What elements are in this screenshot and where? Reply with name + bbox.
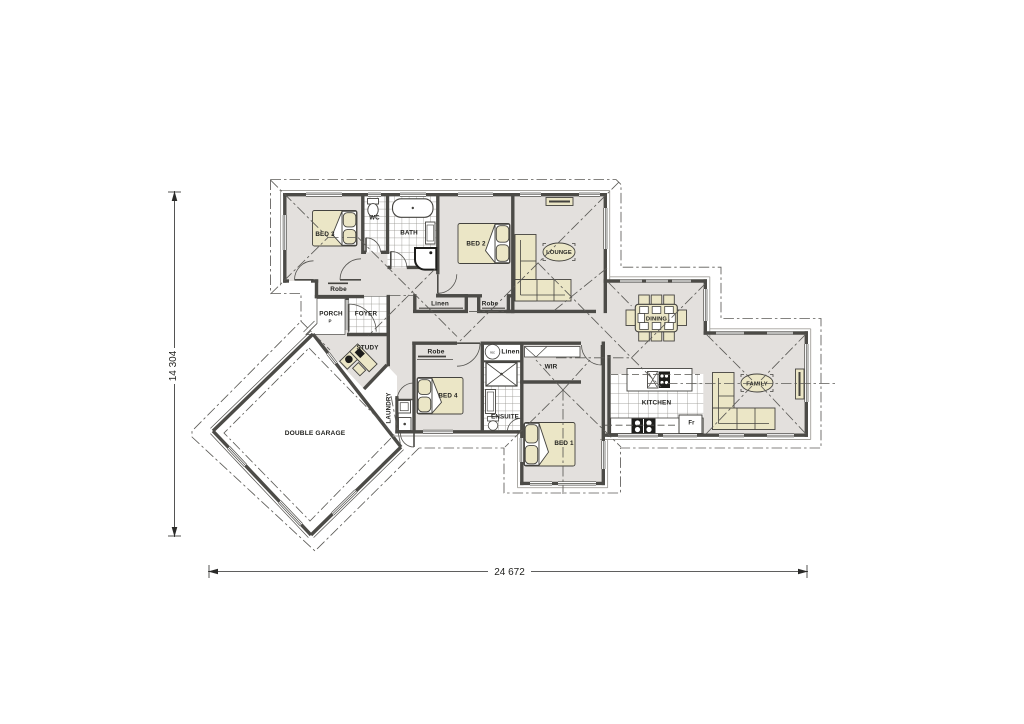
svg-text:FAMILY: FAMILY — [746, 381, 768, 387]
svg-text:BATH: BATH — [400, 230, 418, 237]
svg-text:Robe: Robe — [482, 301, 499, 308]
svg-text:ENSUITE: ENSUITE — [491, 414, 519, 421]
svg-text:KITCHEN: KITCHEN — [642, 400, 672, 407]
svg-text:PORCH: PORCH — [319, 311, 343, 318]
svg-text:WIR: WIR — [545, 364, 558, 371]
svg-text:BED 1: BED 1 — [554, 440, 574, 447]
svg-text:Robe: Robe — [427, 349, 444, 356]
svg-text:rec: rec — [490, 350, 495, 354]
svg-text:Robe: Robe — [330, 286, 347, 293]
svg-text:Fr: Fr — [688, 421, 695, 427]
svg-text:FOYER: FOYER — [355, 311, 378, 318]
svg-text:BED 2: BED 2 — [466, 241, 486, 248]
svg-text:Linen: Linen — [431, 301, 449, 308]
svg-text:P: P — [328, 319, 331, 324]
svg-text:14 304: 14 304 — [168, 350, 179, 381]
svg-text:24 672: 24 672 — [494, 567, 525, 578]
svg-text:DINING: DINING — [646, 316, 668, 322]
svg-text:DOUBLE GARAGE: DOUBLE GARAGE — [285, 430, 346, 437]
svg-text:STUDY: STUDY — [356, 345, 379, 352]
svg-text:WC: WC — [369, 215, 380, 222]
svg-text:Linen: Linen — [501, 349, 519, 356]
svg-text:BED 4: BED 4 — [438, 393, 458, 400]
